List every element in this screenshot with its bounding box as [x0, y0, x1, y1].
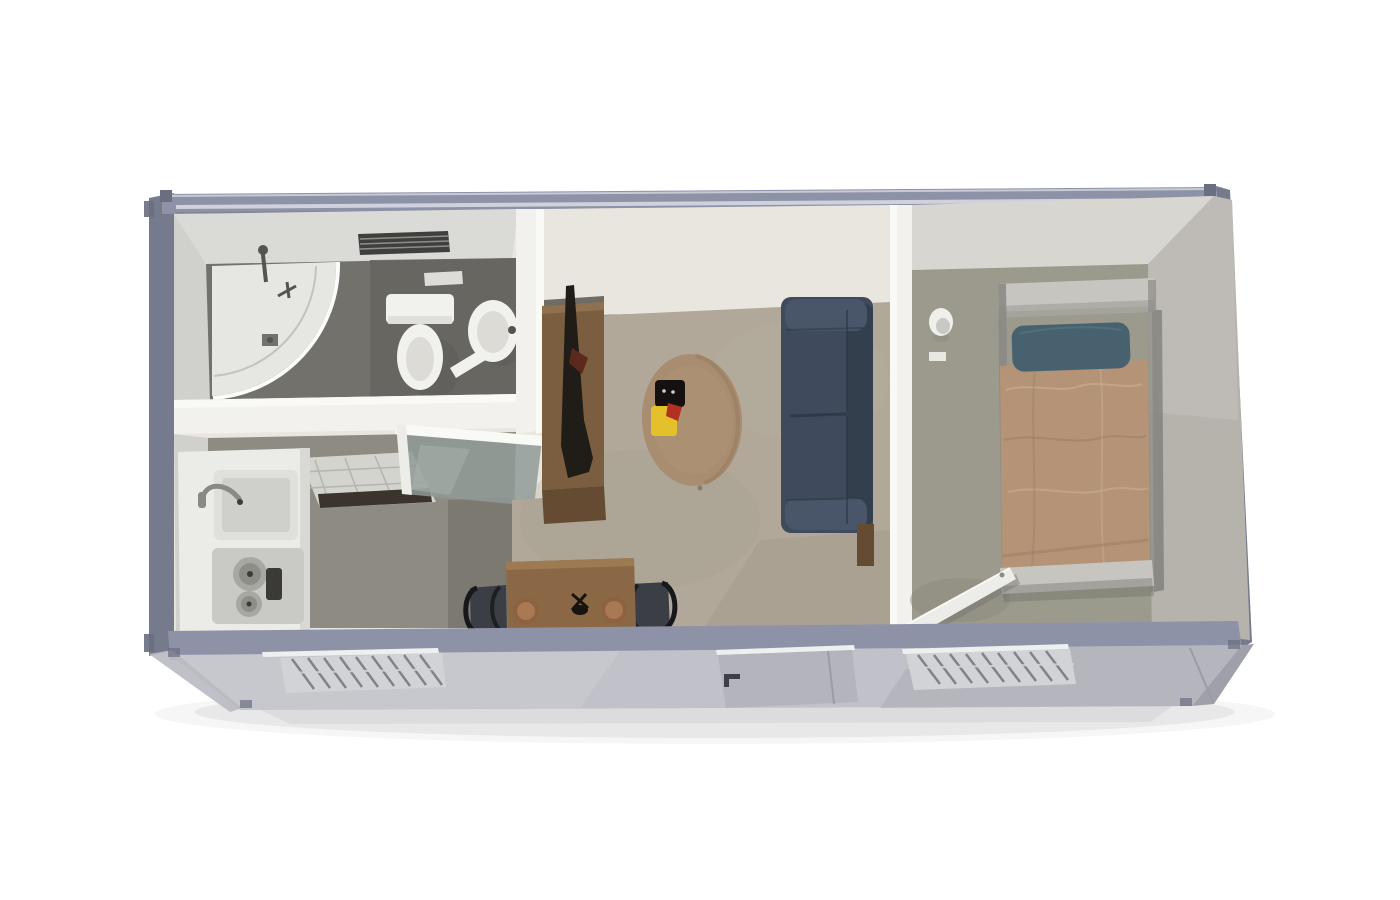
bathroom-back-wall [174, 209, 518, 264]
wash-basin-inner [477, 311, 509, 353]
cooktop-knob-panel [266, 568, 282, 600]
corner-casting-top-right [1204, 184, 1216, 196]
bedroom-light-switch [929, 352, 946, 361]
rug-speck [698, 486, 703, 491]
shower-fixture-cross [287, 282, 289, 298]
toilet-seat-inner [406, 337, 434, 381]
bathroom-wall-switch [424, 271, 463, 286]
sofa-armrest-bottom [785, 498, 867, 530]
black-tray [655, 380, 685, 407]
tray-detail-2 [671, 390, 675, 394]
partition-right [890, 205, 912, 636]
pillow-group [1011, 322, 1131, 372]
facade-notch-top-right [1228, 640, 1240, 649]
facade-notch-bottom-left [240, 700, 252, 708]
sofa-seat-seam [790, 414, 846, 416]
container-house-render [0, 0, 1400, 900]
partition-left [516, 209, 544, 434]
facade-notch-top-left [168, 648, 180, 657]
basin-faucet [508, 326, 516, 334]
plate-left-inner [517, 602, 535, 620]
kitchen-sink-basin [222, 478, 290, 532]
bathroom [174, 209, 526, 408]
wall-lamp-inner [936, 318, 950, 334]
sofa-armrest-top [785, 299, 867, 331]
burner-large-center [247, 571, 253, 577]
sofa [781, 297, 873, 533]
tray-detail-1 [662, 389, 666, 393]
partition-right-lit-edge [890, 205, 897, 636]
floor-plan-canvas [0, 0, 1400, 900]
toilet-tank-edge [388, 316, 452, 324]
frame-left-rail [149, 193, 174, 656]
centerpiece-base [572, 605, 588, 615]
burner-small-center [247, 602, 252, 607]
sofa-backrest [846, 304, 873, 526]
dining-chair-left [470, 585, 507, 633]
side-table [857, 524, 874, 566]
faucet-spout [237, 499, 243, 505]
bathroom-kitchen-wall [174, 394, 518, 434]
shower-head [258, 245, 268, 255]
faucet-base [198, 492, 206, 508]
corner-casting-left-top [144, 201, 154, 217]
bedroom [904, 196, 1250, 642]
tv-cabinet-front [542, 486, 606, 524]
facade-notch-bottom-right [1180, 698, 1192, 706]
corner-casting-top-left [160, 190, 172, 202]
open-door-handle [1000, 573, 1005, 578]
shower-drain-hole [267, 337, 273, 343]
corner-casting-left-bottom [144, 634, 154, 652]
plate-right-inner [605, 601, 623, 619]
front-facade [149, 621, 1254, 712]
door-handle-stem [724, 674, 729, 687]
